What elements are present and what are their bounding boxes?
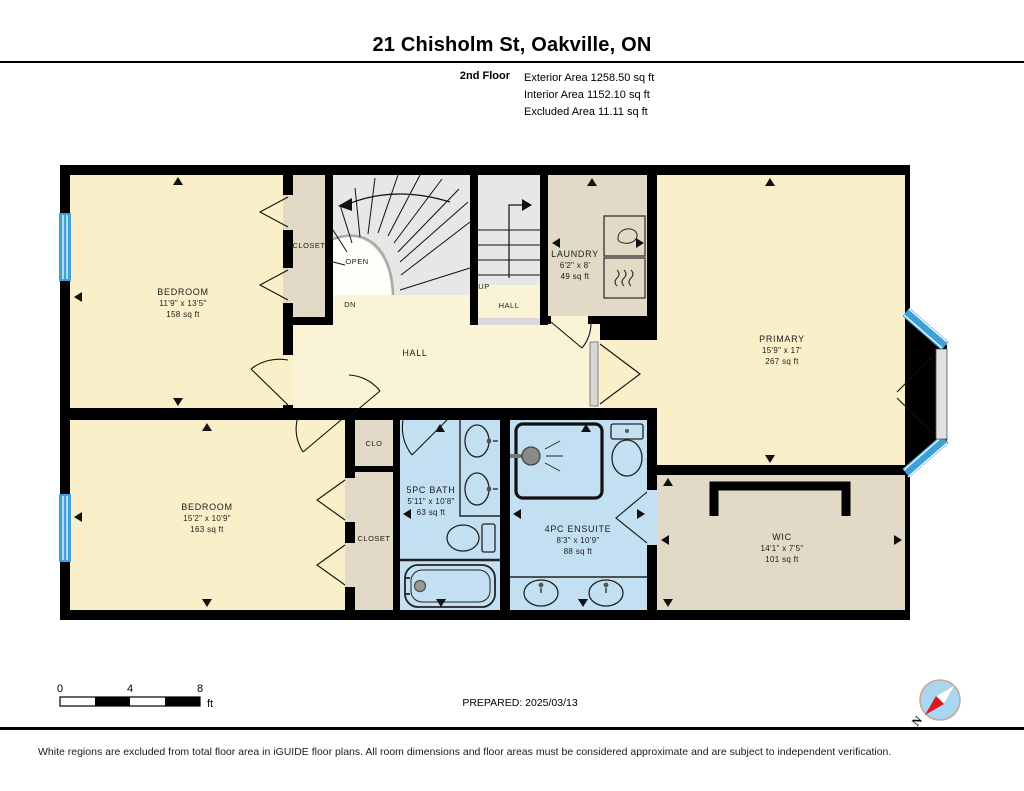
hall-upper-label: HALL — [499, 301, 520, 310]
wic-floor — [657, 475, 905, 610]
closet-2-label: CLOSET — [357, 534, 390, 543]
laundry-door-gap — [551, 316, 588, 324]
scale-tick-8: 8 — [197, 683, 203, 695]
hall-label: HALL — [402, 348, 427, 358]
scale-tick-4: 4 — [127, 683, 133, 695]
closet-1-label: CLOSET — [292, 241, 325, 250]
prepared-date: PREPARED: 2025/03/13 — [462, 697, 578, 709]
bath-floor — [400, 420, 500, 610]
up-label: UP — [478, 282, 489, 291]
window-left-top — [59, 213, 71, 281]
footer-divider — [0, 727, 1024, 730]
primary-entry-nook — [600, 340, 667, 408]
primary-dims: 15'9" x 17' — [762, 346, 802, 355]
bedroom-1-dims: 11'9" x 13'5" — [159, 299, 206, 308]
ensuite-label: 4PC ENSUITE — [545, 524, 612, 534]
closet-2-gap-b — [345, 543, 355, 587]
bedroom-1-door-gap — [283, 355, 293, 405]
window-left-bottom — [59, 494, 71, 562]
laundry-dims: 6'2" x 8' — [560, 261, 591, 270]
dn-label: DN — [344, 300, 356, 309]
bedroom-2-label: BEDROOM — [181, 502, 232, 512]
clo-label: CLO — [366, 439, 383, 448]
compass-icon: N — [909, 680, 960, 729]
open-label: OPEN — [345, 257, 368, 266]
scale-unit: ft — [207, 698, 213, 710]
bedroom-1-label: BEDROOM — [157, 287, 208, 297]
dryer — [604, 258, 645, 298]
bedroom-1-area: 158 sq ft — [166, 310, 200, 319]
bedroom-2-dims: 15'2" x 10'9" — [183, 514, 231, 523]
wic-label: WIC — [772, 532, 792, 542]
bedroom-2-area: 163 sq ft — [190, 525, 224, 534]
bath-area: 63 sq ft — [417, 508, 446, 517]
washer — [604, 216, 645, 256]
bath-label: 5PC BATH — [407, 485, 456, 495]
floor-plan-drawing: BEDROOM 11'9" x 13'5" 158 sq ft CLOSET O… — [0, 0, 1024, 791]
primary-label: PRIMARY — [759, 334, 805, 344]
primary-area: 267 sq ft — [765, 357, 799, 366]
ensuite-dims: 8'3" x 10'9" — [556, 536, 599, 545]
closet-2-gap-a — [345, 478, 355, 522]
disclaimer-text: White regions are excluded from total fl… — [38, 746, 988, 758]
scale-tick-0: 0 — [57, 683, 63, 695]
wic-area: 101 sq ft — [765, 555, 799, 564]
floor-plan-page: 21 Chisholm St, Oakville, ON 2nd Floor E… — [0, 0, 1024, 791]
ensuite-area: 88 sq ft — [564, 547, 593, 556]
scale-bar: 0 4 8 ft — [57, 683, 213, 710]
laundry-area: 49 sq ft — [561, 272, 590, 281]
bath-dims: 5'11" x 10'8" — [407, 497, 454, 506]
wic-dims: 14'1" x 7'5" — [760, 544, 803, 553]
primary-floor — [657, 175, 905, 465]
laundry-label: LAUNDRY — [551, 249, 599, 259]
hall-threshold — [478, 318, 540, 325]
ensuite-wic-door-gap — [647, 490, 657, 545]
